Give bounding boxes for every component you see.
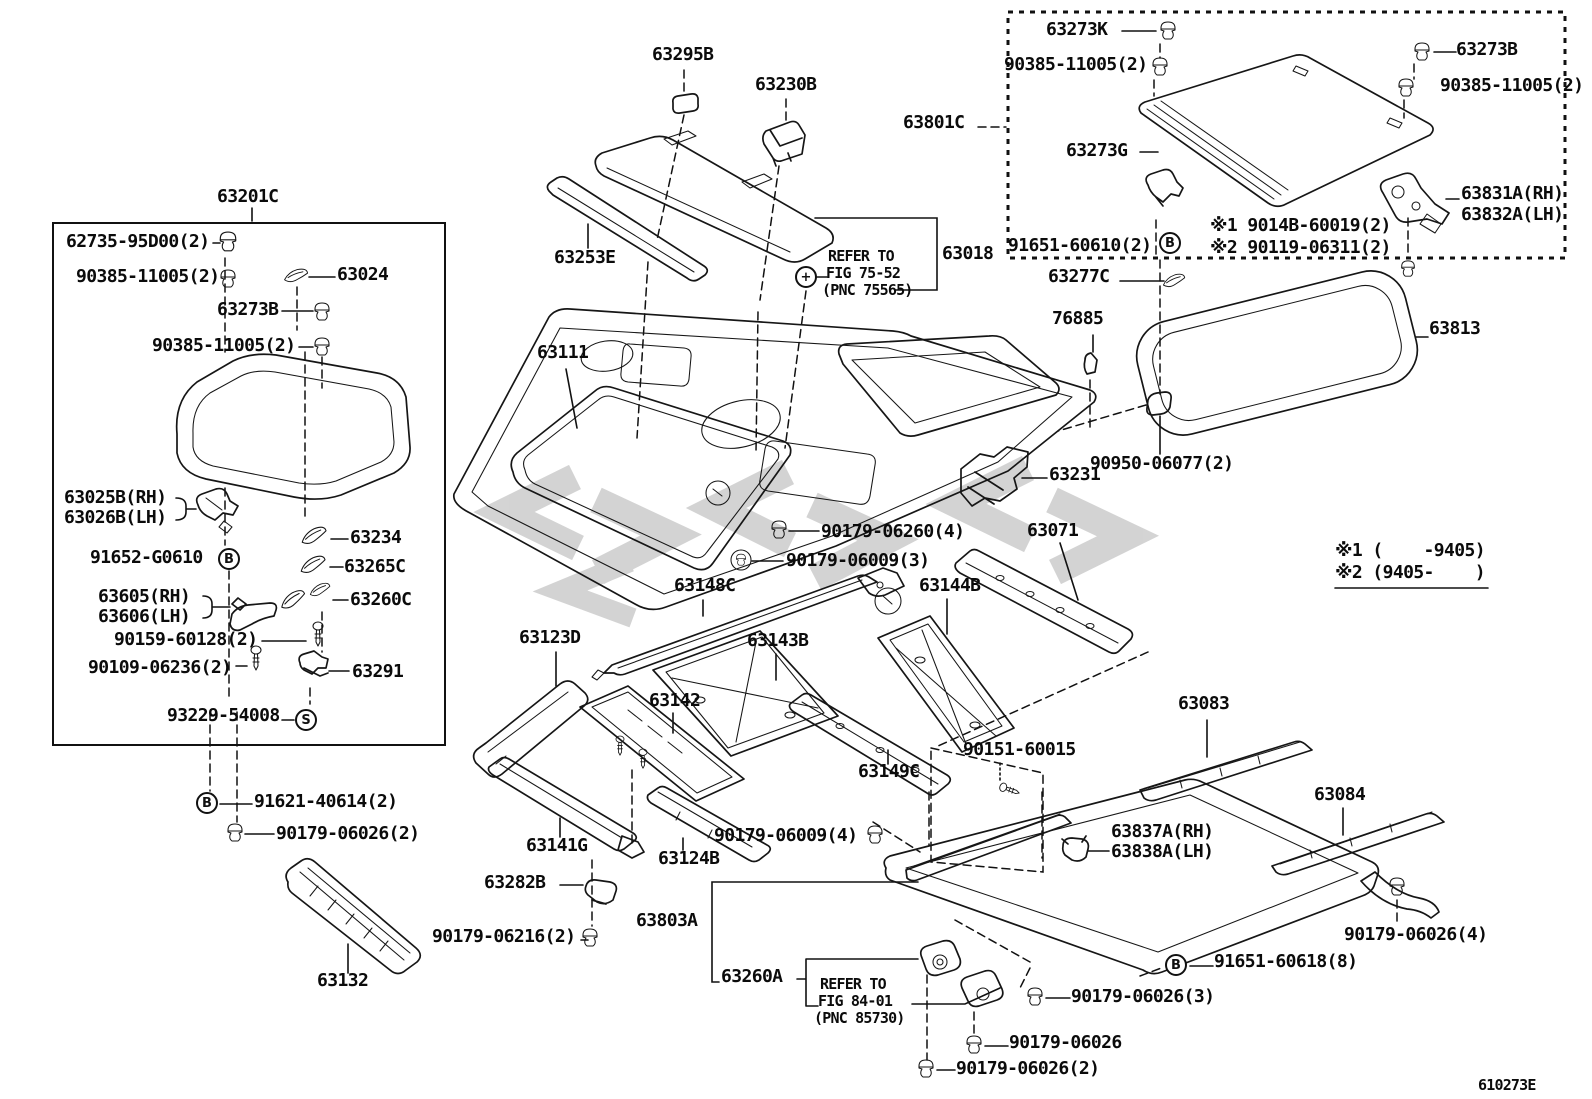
marker-layer: BBSBB+ (0, 0, 1592, 1099)
callout-marker-B: B (1165, 954, 1187, 976)
callout-marker-B: B (1159, 232, 1181, 254)
parts-diagram-roof-panel: 63295B63230B63801C63273K90385-11005(2)63… (0, 0, 1592, 1099)
callout-marker-B: B (218, 548, 240, 570)
callout-marker-+: + (795, 266, 817, 288)
callout-marker-B: B (196, 792, 218, 814)
figure-code: 610273E (1478, 1078, 1536, 1093)
callout-marker-S: S (295, 709, 317, 731)
